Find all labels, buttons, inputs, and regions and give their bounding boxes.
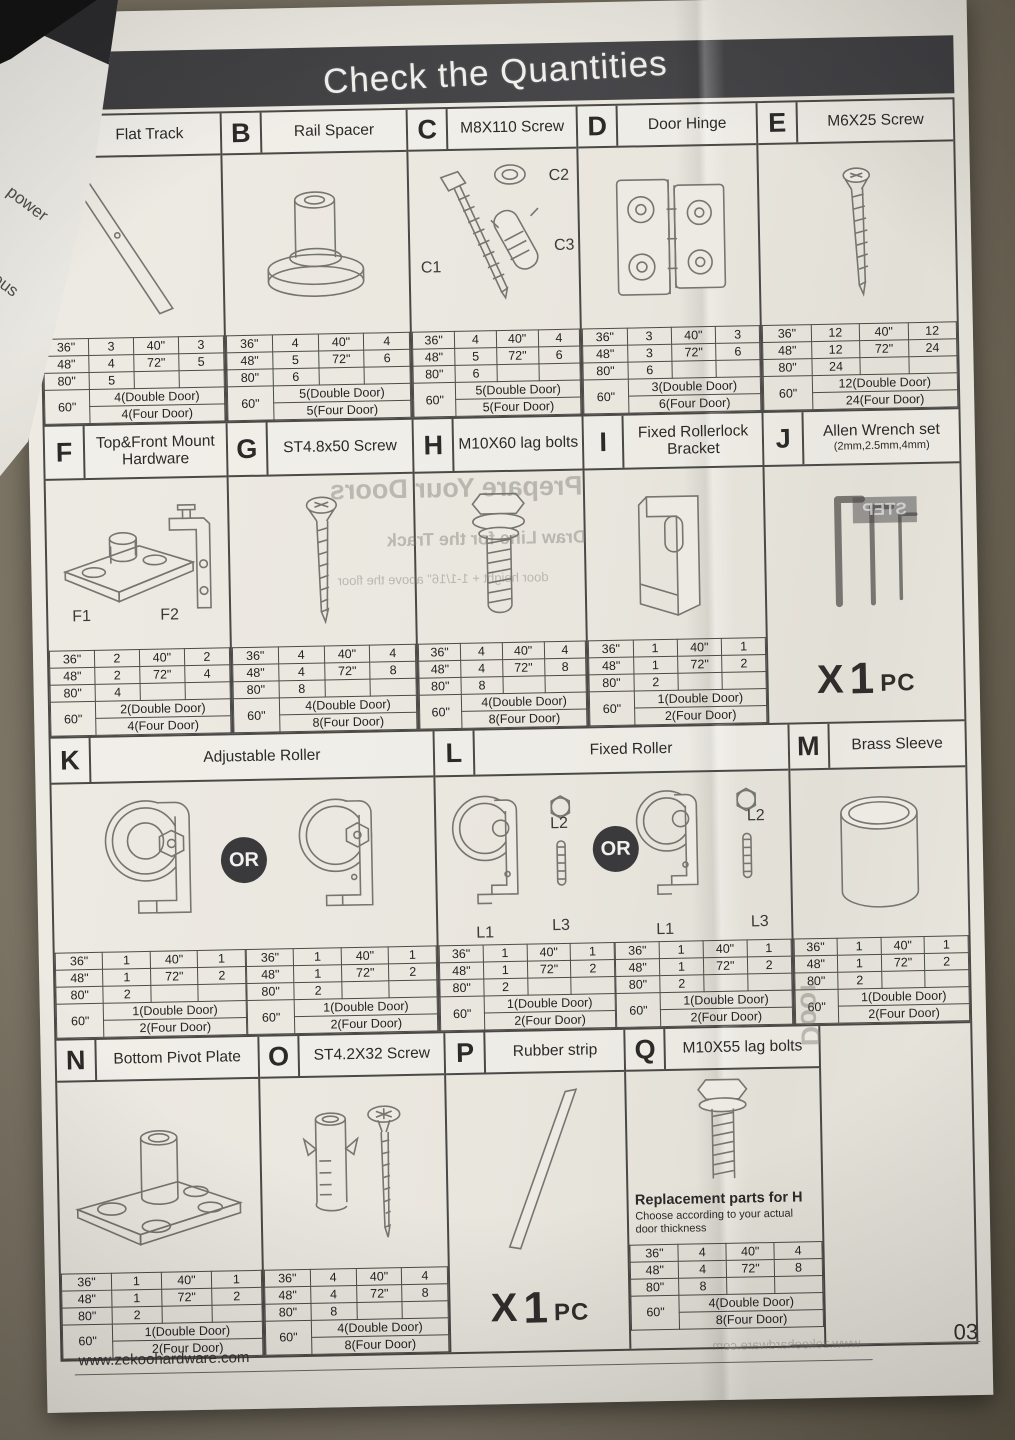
qty-cell [402, 1300, 448, 1318]
qty-cell: 8 [402, 1283, 448, 1301]
qty-cell: 1 [924, 936, 968, 954]
website-url: www.zekoohardware.com [78, 1349, 249, 1369]
qty-cell: 3 [627, 327, 672, 345]
qty-cell: 5(Four Door) [456, 397, 582, 416]
door-hinge-illustration [579, 145, 760, 328]
qty-cell: 4 [402, 1266, 448, 1284]
qty-cell: 80" [419, 677, 461, 695]
qty-cell [860, 357, 909, 375]
qty-cell: 60" [616, 993, 660, 1028]
qty-cell: 60" [247, 1000, 295, 1035]
qty-cell: 1 [721, 638, 766, 656]
qty-cell: 72" [703, 957, 747, 975]
qty-cell: 1 [659, 958, 703, 976]
qty-cell: 12 [811, 341, 860, 359]
qty-cell: 1 [112, 1289, 162, 1307]
section-e-m6x25-screw: E M6X25 Screw 36"1240"1248"1272"2480"246… [758, 99, 959, 411]
qty-cell: 48" [631, 1261, 679, 1279]
replacement-note-body: Choose according to your actual door thi… [635, 1207, 816, 1236]
section-letter: F [45, 426, 86, 479]
qty-cell: 6 [716, 343, 761, 361]
qty-cell: 36" [630, 1244, 678, 1262]
m10x60-lag-bolt-illustration [415, 471, 586, 644]
st48x50-screw-illustration [228, 474, 416, 648]
qty-cell: 72" [356, 1284, 402, 1302]
qty-cell: 40" [341, 947, 389, 965]
section-f-top-front-mount: F Top&Front Mount Hardware [45, 423, 234, 736]
qty-cell: 48" [413, 348, 455, 366]
section-name: M6X25 Screw [798, 99, 953, 142]
qty-cell: 72" [726, 1259, 774, 1277]
part-label-c3: C3 [554, 237, 575, 255]
quantity-table: 36"440"448"572"680"660"5(Double Door)5(F… [412, 329, 582, 418]
section-name: Rail Spacer [261, 110, 406, 153]
torn-page-text: ious [0, 267, 22, 302]
quantity-table: 36"140"148"172"280"260"1(Double Door)2(F… [246, 945, 439, 1035]
quantity-table: 36"140"148"172"280"260"1(Double Door)2(F… [55, 949, 248, 1039]
qty-cell: 40" [671, 326, 716, 344]
instruction-sheet: Check the Quantities A Flat Track 36"340… [21, 0, 994, 1413]
qty-cell: 60" [420, 694, 462, 729]
qty-cell: 80" [413, 365, 455, 383]
section-k-adjustable-roller: K Adjustable Roller [51, 731, 441, 1038]
qty-cell: 60" [440, 996, 484, 1031]
qty-cell: 80" [794, 972, 838, 990]
x1pc-unit: PC [880, 669, 916, 698]
qty-cell: 36" [264, 1269, 310, 1287]
qty-cell [162, 1305, 212, 1323]
qty-cell: 36" [246, 949, 294, 967]
qty-cell: 4 [678, 1243, 726, 1261]
qty-cell: 8 [461, 677, 503, 695]
qty-cell: 1 [211, 1270, 261, 1288]
section-q-header: Q M10X55 lag bolts [626, 1026, 819, 1072]
part-label-f1: F1 [72, 608, 91, 626]
quantity-table: 36"140"148"172"280"260"1(Double Door)2(F… [793, 935, 970, 1024]
qty-cell: 1 [570, 942, 614, 960]
qty-cell [389, 980, 437, 998]
qty-cell [722, 672, 767, 690]
qty-cell: 4(Four Door) [90, 404, 225, 424]
qty-cell: 36" [763, 325, 812, 343]
qty-cell: 36" [794, 938, 838, 956]
allen-wrench-illustration [765, 463, 963, 639]
qty-cell: 48" [56, 969, 104, 987]
qty-cell: 24(Four Door) [812, 390, 958, 410]
qty-cell: 4 [460, 643, 502, 661]
qty-cell: 40" [726, 1242, 774, 1260]
qty-cell: 36" [439, 945, 483, 963]
qty-cell: 2 [103, 985, 151, 1003]
qty-cell: 36" [419, 643, 461, 661]
section-name: Bottom Pivot Plate [96, 1037, 258, 1080]
qty-cell: 72" [324, 662, 370, 680]
qty-cell: 80" [233, 681, 279, 699]
qty-cell: 2(Four Door) [634, 706, 767, 726]
qty-cell: 48" [44, 355, 89, 373]
qty-cell: 8(Four Door) [462, 709, 588, 728]
qty-cell: 48" [583, 345, 628, 363]
qty-cell: 80" [50, 684, 95, 702]
quantity-table: 36"140"148"172"280"260"1(Double Door)2(F… [615, 939, 793, 1028]
qty-cell: 60" [764, 376, 813, 411]
replacement-note: Replacement parts for H Choose according… [629, 1188, 823, 1240]
qty-cell: 36" [226, 335, 272, 353]
qty-cell: 60" [795, 989, 839, 1024]
section-letter: M [789, 724, 830, 769]
qty-cell: 40" [677, 638, 722, 656]
qty-cell: 40" [324, 645, 370, 663]
qty-cell: 40" [150, 950, 198, 968]
quantity-table: 36"440"448"472"880"860"4(Double Door)8(F… [264, 1266, 450, 1356]
qty-cell: 80" [227, 369, 273, 387]
qty-cell: 2 [838, 971, 882, 989]
qty-cell: 2 [389, 963, 437, 981]
x1pc-num: 1 [849, 654, 874, 704]
qty-cell: 4 [679, 1260, 727, 1278]
qty-cell: 3 [715, 326, 760, 344]
section-letter: D [578, 106, 619, 147]
qty-cell: 36" [615, 942, 659, 960]
qty-cell: 1 [111, 1272, 161, 1290]
qty-cell: 40" [502, 642, 544, 660]
qty-cell: 8(Four Door) [279, 712, 417, 732]
qty-cell: 1 [483, 944, 527, 962]
qty-cell: 2 [184, 648, 229, 666]
section-letter: O [259, 1036, 300, 1077]
qty-cell: 1 [837, 954, 881, 972]
quantity-table: 36"440"448"472"880"860"4(Double Door)8(F… [232, 644, 418, 734]
qty-cell [571, 976, 615, 994]
section-l-fixed-roller: L Fixed Roller [434, 725, 794, 1032]
qty-cell: 1 [747, 939, 791, 957]
rail-spacer-illustration [222, 152, 410, 336]
qty-cell: 4 [95, 684, 140, 702]
qty-cell: 80" [589, 674, 634, 692]
part-label-l3: L3 [552, 917, 570, 935]
qty-cell: 40" [881, 937, 925, 955]
qty-cell: 2(Four Door) [838, 1004, 969, 1024]
qty-cell: 48" [265, 1286, 311, 1304]
qty-cell: 2 [747, 956, 791, 974]
qty-cell: 3 [178, 336, 223, 354]
qty-cell: 72" [677, 655, 722, 673]
section-name: ST4.2X32 Screw [299, 1033, 444, 1076]
qty-cell: 1 [294, 948, 342, 966]
qty-cell [198, 984, 246, 1002]
qty-cell: 60" [50, 701, 96, 736]
fixed-roller-illustration: OR L1 L2 L3 L1 L2 L3 [435, 771, 791, 946]
qty-cell: 2 [925, 953, 969, 971]
part-label-l3: L3 [751, 913, 769, 931]
qty-cell: 2(Four Door) [484, 1010, 616, 1030]
qty-cell: 4(Four Door) [96, 716, 231, 736]
part-label-c1: C1 [421, 259, 442, 277]
parts-grid: A Flat Track 36"340"348"472"580"560"4(Do… [37, 97, 979, 1361]
qty-cell: 48" [589, 657, 634, 675]
qty-cell: 48" [50, 667, 95, 685]
qty-cell: 5 [455, 348, 497, 366]
qty-cell [212, 1304, 262, 1322]
section-name: Rubber strip [486, 1030, 625, 1073]
qty-cell: 8 [370, 661, 416, 679]
section-name: M10X60 lag bolts [454, 417, 583, 471]
quantity-table: 36"140"148"172"280"260"1(Double Door)2(F… [438, 942, 616, 1031]
qty-cell: 80" [265, 1303, 311, 1321]
section-c-header: C M8X110 Screw [408, 107, 577, 152]
section-g-st4-8x50-screw: G ST4.8x50 Screw 36"440"448"472"880"860"… [227, 420, 419, 734]
qty-cell: 1 [389, 946, 437, 964]
qty-cell: 36" [413, 331, 455, 349]
section-h-m10x60-lag-bolts: H M10X60 lag bolts 36"440"448"472"880"86… [414, 416, 590, 729]
qty-cell: 2(Four Door) [104, 1018, 247, 1038]
section-name: M10X55 lag bolts [666, 1026, 819, 1069]
qty-cell: 4 [774, 1241, 822, 1259]
section-q-m10x55-lag-bolts: Q M10X55 lag bolts Replacement parts for… [626, 1026, 827, 1348]
qty-cell: 1 [837, 937, 881, 955]
x1pc-x: X [817, 657, 845, 703]
qty-cell: 48" [616, 959, 660, 977]
quantity-table: 36"440"448"472"880"860"4(Double Door)8(F… [630, 1241, 824, 1331]
qty-cell: 72" [527, 960, 571, 978]
section-letter: B [221, 113, 262, 154]
qty-cell: 6(Four Door) [628, 394, 761, 414]
qty-cell: 60" [590, 691, 635, 726]
section-p-header: P Rubber strip [446, 1030, 625, 1075]
qty-cell: 80" [616, 976, 660, 994]
qty-cell: 72" [671, 343, 716, 361]
qty-cell: 72" [140, 666, 185, 684]
qty-cell: 2 [660, 975, 704, 993]
qty-cell [185, 682, 230, 700]
section-i-header: I Fixed Rollerlock Bracket [584, 413, 763, 470]
section-name: Top&Front Mount Hardware [85, 423, 227, 478]
qty-cell [881, 971, 925, 989]
quantity-table: 36"240"248"272"480"460"2(Double Door)4(F… [49, 647, 231, 736]
section-f-header: F Top&Front Mount Hardware [45, 423, 227, 480]
qty-cell: 48" [794, 955, 838, 973]
qty-cell [538, 363, 580, 381]
qty-cell [727, 1276, 775, 1294]
qty-cell: 40" [133, 337, 178, 355]
qty-cell: 36" [61, 1273, 111, 1291]
part-label-l2: L2 [550, 815, 568, 833]
part-label-c2: C2 [548, 167, 569, 185]
qty-cell [357, 1301, 403, 1319]
qty-cell: 60" [44, 389, 90, 424]
qty-cell: 48" [232, 664, 278, 682]
qty-cell: 8 [679, 1277, 727, 1295]
section-n-header: N Bottom Pivot Plate [56, 1037, 258, 1083]
qty-cell: 4 [278, 646, 324, 664]
x1pc-num: 1 [523, 1283, 548, 1333]
qty-cell [527, 977, 571, 995]
qty-cell: 1 [103, 968, 151, 986]
qty-cell: 4 [278, 663, 324, 681]
qty-cell: 2(Four Door) [295, 1014, 438, 1034]
qty-cell: 48" [62, 1290, 112, 1308]
quantity-one-piece: X 1 PC [450, 1264, 630, 1351]
section-letter: J [764, 412, 805, 465]
qty-cell: 72" [134, 354, 179, 372]
section-letter: G [227, 423, 268, 476]
x1pc-x: X [490, 1286, 518, 1332]
section-letter: L [434, 731, 475, 776]
qty-cell: 2 [212, 1287, 262, 1305]
qty-cell [151, 984, 199, 1002]
qty-cell: 8(Four Door) [680, 1309, 824, 1329]
qty-cell: 6 [627, 361, 672, 379]
quantity-table: 36"340"348"372"680"660"3(Double Door)6(F… [582, 325, 762, 414]
qty-cell: 72" [162, 1288, 212, 1306]
qty-cell: 80" [763, 359, 812, 377]
qty-cell: 80" [247, 983, 295, 1001]
qty-cell: 2 [722, 655, 767, 673]
section-letter: H [414, 419, 455, 472]
qty-cell: 36" [55, 952, 103, 970]
section-letter: Q [626, 1029, 667, 1070]
qty-cell: 72" [318, 350, 364, 368]
qty-cell: 4 [272, 334, 318, 352]
qty-cell: 36" [583, 328, 628, 346]
section-b-rail-spacer: B Rail Spacer 36"440"448"572"680"660"5(D… [221, 110, 413, 422]
section-name: ST4.8x50 Screw [267, 420, 412, 475]
qty-cell [775, 1275, 823, 1293]
row-2: F Top&Front Mount Hardware [45, 409, 965, 738]
m6x25-screw-illustration [759, 141, 957, 325]
qty-cell: 80" [631, 1278, 679, 1296]
x1pc-unit: PC [554, 1298, 590, 1327]
qty-cell: 6 [455, 365, 497, 383]
section-letter: N [56, 1040, 97, 1081]
qty-cell: 60" [233, 698, 280, 733]
qty-cell: 48" [439, 962, 483, 980]
qty-cell: 48" [227, 352, 273, 370]
section-letter: K [51, 738, 92, 783]
qty-cell: 1 [483, 961, 527, 979]
qty-cell [364, 366, 410, 384]
rubber-strip-illustration [446, 1072, 628, 1268]
quantity-table: 36"1240"1248"1272"2480"2460"12(Double Do… [762, 321, 958, 411]
qty-cell: 4 [185, 665, 230, 683]
qty-cell [342, 981, 390, 999]
part-label-l1: L1 [476, 924, 494, 942]
qty-cell: 60" [584, 379, 629, 414]
section-j-allen-wrench-set: J Allen Wrench set (2mm,2.5mm,4mm) X [764, 409, 965, 723]
qty-cell: 3 [627, 344, 672, 362]
qty-cell: 80" [44, 372, 89, 390]
bottom-pivot-plate-illustration [57, 1079, 262, 1273]
qty-cell [747, 973, 791, 991]
qty-cell: 1 [633, 639, 678, 657]
qty-cell: 40" [356, 1267, 402, 1285]
qty-cell: 40" [527, 943, 571, 961]
torn-page-text: power [3, 182, 52, 226]
qty-cell [544, 675, 586, 693]
qty-cell: 80" [56, 986, 104, 1004]
qty-cell [497, 364, 539, 382]
qty-cell: 2 [94, 650, 139, 668]
qty-cell: 4 [370, 644, 416, 662]
row-3: K Adjustable Roller [51, 721, 971, 1040]
qty-cell: 8 [279, 680, 325, 698]
m8x110-screw-illustration: C1 C2 C3 [409, 149, 580, 332]
qty-cell: 80" [440, 979, 484, 997]
qty-cell: 12 [811, 324, 860, 342]
rollerlock-bracket-illustration [585, 467, 766, 640]
qty-cell [925, 970, 969, 988]
section-letter: I [584, 416, 625, 469]
section-o-st4-2x32-screw: O ST4.2X32 Screw [259, 1033, 452, 1355]
qty-cell: 1 [633, 656, 678, 674]
qty-cell: 4 [538, 329, 580, 347]
quantity-table: 36"340"348"472"580"560"4(Double Door)4(F… [43, 335, 225, 424]
footer-rule-right [790, 1341, 980, 1346]
qty-cell: 5 [179, 353, 224, 371]
adjustable-roller-illustration: OR [51, 777, 436, 952]
qty-cell: 80" [62, 1307, 112, 1325]
qty-cell [678, 672, 723, 690]
quantity-table: 36"440"448"472"880"860"4(Double Door)8(F… [418, 640, 588, 729]
qty-cell [908, 356, 957, 374]
qty-cell: 8 [544, 658, 586, 676]
qty-cell: 4 [461, 660, 503, 678]
qty-cell: 2 [483, 978, 527, 996]
qty-cell: 60" [414, 382, 456, 417]
qty-cell [325, 679, 371, 697]
qty-cell: 4 [89, 355, 134, 373]
section-p-rubber-strip: P Rubber strip X 1 PC [446, 1030, 632, 1352]
qty-cell: 72" [496, 347, 538, 365]
section-letter: E [758, 102, 799, 143]
qty-cell: 40" [161, 1271, 211, 1289]
section-name: Fixed Roller [474, 725, 787, 775]
part-label-l1: L1 [656, 921, 674, 939]
section-d-door-hinge: D Door Hinge 36"340"348"372"680"660"3(Do… [578, 103, 764, 414]
mount-hardware-illustration: F1 F2 [46, 477, 230, 650]
qty-cell: 48" [419, 660, 461, 678]
qty-cell: 72" [860, 340, 909, 358]
section-k-header: K Adjustable Roller [51, 731, 434, 784]
qty-cell: 36" [49, 650, 94, 668]
qty-cell: 24 [908, 339, 957, 357]
qty-cell: 24 [812, 358, 861, 376]
qty-cell [672, 360, 717, 378]
section-h-header: H M10X60 lag bolts [414, 417, 583, 474]
replacement-note-title: Replacement parts for H [635, 1190, 816, 1209]
section-name-main: Allen Wrench set [823, 421, 940, 441]
section-n-bottom-pivot-plate: N Bottom Pivot Plate [56, 1037, 265, 1359]
quantity-one-piece: X 1 PC [768, 635, 964, 723]
brass-sleeve-illustration [790, 767, 969, 938]
qty-cell: 4 [454, 331, 496, 349]
qty-cell: 60" [56, 1003, 104, 1038]
qty-cell: 5 [272, 351, 318, 369]
page-number: 03 [953, 1319, 978, 1345]
qty-cell: 60" [631, 1295, 680, 1330]
qty-cell: 40" [703, 940, 747, 958]
qty-cell: 4 [544, 641, 586, 659]
qty-cell [134, 371, 179, 389]
section-letter: C [408, 109, 449, 150]
part-label-f2: F2 [160, 606, 179, 624]
section-l-header: L Fixed Roller [434, 725, 787, 778]
qty-cell: 40" [496, 330, 538, 348]
qty-cell: 3 [88, 338, 133, 356]
section-name: Adjustable Roller [91, 731, 434, 782]
section-name: Fixed Rollerlock Bracket [624, 413, 763, 468]
part-label-l2: L2 [747, 807, 765, 825]
